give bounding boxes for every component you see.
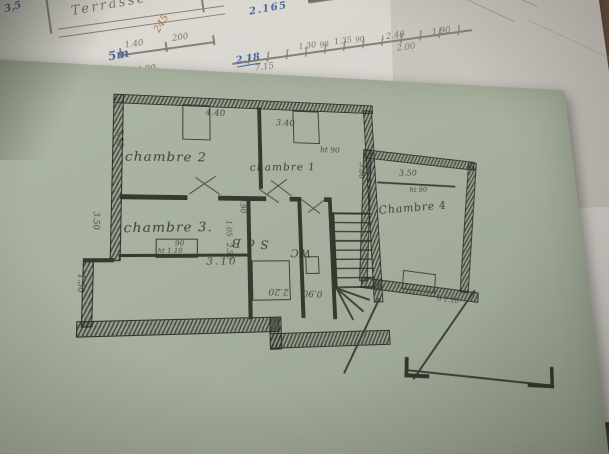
photo-of-floorplan-papers: 1.40 200 7.15 1.30 90 1.35 90 2.40 2.00 …	[0, 0, 609, 454]
wall-sdb-left	[246, 196, 252, 319]
wall-top	[113, 94, 373, 115]
corner-note: 3,5	[3, 0, 23, 15]
wall-notch	[81, 258, 94, 327]
dim-440: 4.40	[205, 109, 225, 119]
terrace-pillar-left	[405, 357, 430, 378]
wall-c4-top	[363, 149, 474, 171]
dim-ht90-c1: ht 90	[320, 146, 340, 155]
room-label-chambre4: Chambre 4	[378, 199, 448, 217]
dim-2165: 2.165	[248, 0, 288, 18]
wall-left	[110, 94, 124, 262]
door-c3	[189, 176, 216, 195]
dim-340: 3.40	[276, 119, 295, 129]
dim-220: 2.20	[268, 286, 288, 297]
dim-350-c4: 3.50	[399, 169, 418, 178]
wall-notch-cap	[83, 258, 114, 262]
dim-250: 2.50	[225, 243, 234, 260]
dim-350-left: 3.50	[91, 212, 101, 230]
dim-ht90-c4: ht 90	[409, 186, 427, 194]
dim-door-090: 0.90	[238, 197, 247, 213]
door-c1	[266, 179, 288, 196]
wall-c4-right	[460, 161, 477, 293]
chambre4-block: Chambre 4 3.50 ht 90 3.80 h 1.10	[352, 140, 563, 438]
dim-200: 200	[172, 32, 189, 44]
room-label-chambre2: chambre 2	[125, 150, 207, 165]
terrasse-left-wall	[40, 0, 52, 34]
green-floorplan-sheet: chambre 2 chambre 1 chambre 3. S d B WC …	[0, 58, 609, 454]
dim-90b: 90	[355, 34, 366, 44]
dim-355: 3.55	[115, 129, 125, 146]
terrace-pillar-right	[527, 366, 554, 389]
dim-380: 3.80	[357, 162, 366, 179]
wall-middle-a	[120, 194, 188, 200]
dim-h110-c4: h 1.10	[437, 294, 459, 305]
room-label-sdb: S d B	[231, 236, 269, 252]
dim-150: 1.50	[75, 274, 86, 293]
dim-090b: 0.90	[303, 287, 323, 298]
room-label-chambre1: chambre 1	[249, 161, 316, 174]
door-wc	[301, 199, 320, 214]
terrasse-label: Terrasse	[70, 0, 148, 19]
room-label-wc: WC	[289, 246, 310, 259]
dim-90a: 90	[319, 39, 330, 49]
scale-note-5m: 5m	[107, 46, 130, 64]
wall-divider-c2-c1	[257, 107, 263, 188]
room-label-chambre3: chambre 3.	[123, 220, 213, 236]
wall-bottom-band	[76, 317, 280, 338]
dim-105: 1.05	[224, 220, 233, 236]
dim-window-ht110: ht 1.10	[158, 247, 183, 255]
window-c4	[402, 270, 436, 293]
window-c1	[292, 111, 319, 144]
